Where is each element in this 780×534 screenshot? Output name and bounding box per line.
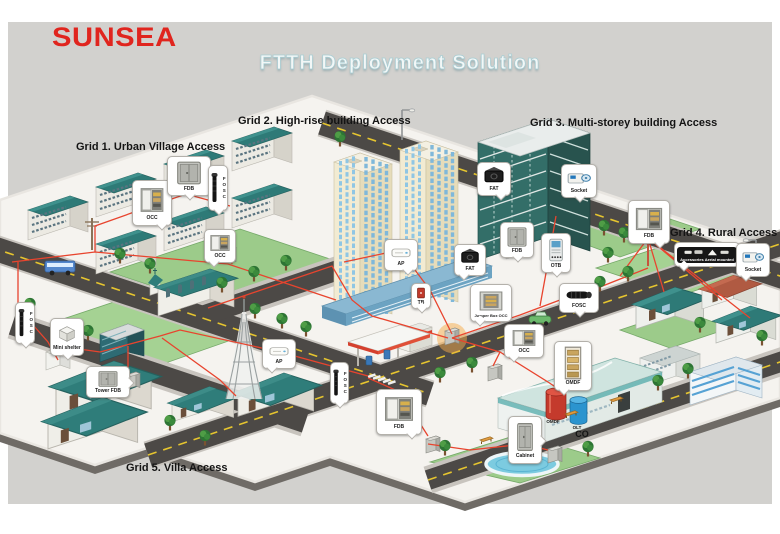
callout-label: FDB xyxy=(394,425,404,430)
splice-closure-icon xyxy=(332,368,340,398)
co-label: CO xyxy=(570,429,594,439)
callout-label: AP xyxy=(276,360,283,365)
aerial-accessories-banner: Accessories Aerial mounted xyxy=(677,247,737,263)
fdb-cabinet-icon xyxy=(634,205,664,233)
callout-label: OCC xyxy=(146,216,157,221)
fat-box-icon xyxy=(482,166,506,186)
callout-label: Cabinet xyxy=(516,454,534,459)
callout-label: FDB xyxy=(644,234,654,239)
callout-label: FOSC xyxy=(221,176,226,200)
callout-otb: OTB xyxy=(541,233,571,273)
callout-label: Socket xyxy=(745,268,761,273)
callout-label: FAT xyxy=(489,187,498,192)
callout-omdf: OMDF xyxy=(554,341,592,391)
callout-label: FOSC xyxy=(572,304,586,309)
grid4-label: Grid 4. Rural Access xyxy=(670,227,777,239)
callout-socket-rural: Socket xyxy=(736,243,770,277)
callout-label: FDB xyxy=(512,249,522,254)
otb-icon xyxy=(547,237,565,263)
grid1-label: Grid 1. Urban Village Access xyxy=(76,141,225,153)
aerial-hardware-icons xyxy=(680,248,734,257)
shelter-icon xyxy=(56,323,78,345)
terminal-box-icon xyxy=(415,286,427,300)
callout-fosc-villa: FOSC xyxy=(330,362,349,404)
access-point-icon xyxy=(267,343,291,359)
callout-fat-multistorey: FAT xyxy=(477,162,511,196)
cabinet-icon xyxy=(515,421,535,453)
callout-label: FDB xyxy=(184,187,194,192)
access-point-icon xyxy=(389,244,413,261)
grid5-label: Grid 5. Villa Access xyxy=(126,462,228,474)
callout-label: OMDF xyxy=(566,381,581,386)
callout-label: FAT xyxy=(465,267,474,272)
fdb-cabinet-icon xyxy=(505,226,529,248)
callout-label: Mini shelter xyxy=(53,346,81,351)
jumper-box-icon xyxy=(478,289,504,313)
callout-fosc-left: FOSC xyxy=(15,302,35,344)
fdb-cabinet-icon xyxy=(383,394,415,424)
callout-fdb-urban: FDB xyxy=(167,156,211,196)
callout-fosc-urban: FOSC xyxy=(208,165,228,211)
callout-fdb-multistorey: FDB xyxy=(500,222,534,258)
socket-icon xyxy=(566,168,592,188)
callout-label: Jumper Box OCC xyxy=(474,314,507,318)
occ-cabinet-icon xyxy=(139,185,165,215)
callout-mini-shelter: Mini shelter xyxy=(50,318,84,356)
fat-box-icon xyxy=(459,248,481,266)
callout-label: OTB xyxy=(551,264,562,269)
callout-label: OCC xyxy=(214,254,225,259)
omdf-rack-icon xyxy=(562,346,584,380)
page-title: FTTH Deployment Solution xyxy=(235,52,565,75)
callout-occ-urban-wall: OCC xyxy=(132,180,172,226)
callout-cabinet: Cabinet xyxy=(508,416,542,464)
fdb-cabinet-icon xyxy=(96,370,120,388)
occ-cabinet-icon xyxy=(209,233,231,253)
callout-label: Accessories Aerial mounted xyxy=(680,258,734,262)
callout-occ-center: OCC xyxy=(504,324,544,358)
callout-label: Socket xyxy=(571,189,587,194)
callout-tower-fdb: Tower FDB xyxy=(86,366,130,398)
callout-ap-villa: AP xyxy=(262,339,296,369)
splice-closure-icon xyxy=(564,287,594,303)
callout-label: FOSC xyxy=(342,371,347,395)
callout-accessories-aerial: Accessories Aerial mounted xyxy=(674,242,740,267)
callout-socket-multistorey: Socket xyxy=(561,164,597,198)
splice-closure-icon xyxy=(210,171,219,205)
callout-label: FOSC xyxy=(28,311,33,335)
fdb-cabinet-icon xyxy=(174,160,204,186)
callout-occ-urban-street: OCC xyxy=(204,229,236,263)
callout-fat-highrise: FAT xyxy=(454,244,486,276)
callout-fosc-road: FOSC xyxy=(559,283,599,313)
callout-tb-highrise: TB xyxy=(411,283,431,309)
callout-ap-highrise: AP xyxy=(384,239,418,271)
callout-fdb-villa: FDB xyxy=(376,389,422,435)
occ-cabinet-icon xyxy=(511,328,537,348)
grid2-label: Grid 2. High-rise building Access xyxy=(238,115,411,127)
splice-closure-icon xyxy=(17,308,26,338)
callout-fdb-rural: FDB xyxy=(628,200,670,244)
callout-jumper-box-occ: Jumper Box OCC xyxy=(470,284,512,322)
callout-label: OCC xyxy=(518,349,529,354)
socket-icon xyxy=(741,247,765,267)
omdf-cylinder-label: OMDF xyxy=(538,419,568,424)
ftth-deployment-poster: SUNSEA FTTH Deployment Solution Grid 1. … xyxy=(0,0,780,534)
callout-label: Tower FDB xyxy=(95,389,121,394)
callout-label: TB xyxy=(418,301,425,306)
grid3-label: Grid 3. Multi-storey building Access xyxy=(530,117,717,129)
sunsea-logo: SUNSEA xyxy=(52,22,177,53)
callout-label: AP xyxy=(398,262,405,267)
